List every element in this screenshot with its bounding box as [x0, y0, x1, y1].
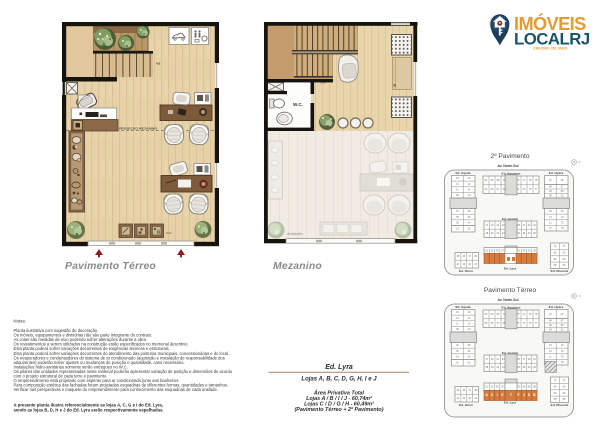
svg-text:3.21: 3.21 — [166, 231, 172, 235]
svg-text:Ed. Lyra: Ed. Lyra — [325, 364, 353, 371]
svg-text:Ed. Orion: Ed. Orion — [459, 403, 473, 407]
svg-text:Ed. Aquila: Ed. Aquila — [455, 171, 470, 175]
svg-text:Notas:: Notas: — [14, 319, 26, 324]
svg-text:Ed. Phoenix: Ed. Phoenix — [551, 269, 569, 273]
svg-text:2º Pavimento: 2º Pavimento — [490, 153, 529, 160]
svg-text:Mezanino: Mezanino — [273, 261, 322, 272]
svg-text:W.C.: W.C. — [293, 102, 303, 107]
svg-text:Ed. Lyra: Ed. Lyra — [504, 401, 516, 405]
svg-text:Av. Norte-Sul: Av. Norte-Sul — [497, 298, 518, 302]
svg-text:Ed. Hydra: Ed. Hydra — [549, 171, 564, 175]
svg-text:Ambientes: Ambientes — [286, 232, 303, 236]
svg-text:T: T — [510, 393, 512, 397]
svg-text:4.0: 4.0 — [156, 62, 161, 66]
svg-text:Pavimento Térreo: Pavimento Térreo — [484, 287, 537, 294]
svg-text:CRECI/RJ 051.306/O: CRECI/RJ 051.306/O — [533, 47, 568, 51]
svg-text:Av. Norte-Sul: Av. Norte-Sul — [497, 164, 518, 168]
svg-text:(Pavimento Térreo + 2º Pavimen: (Pavimento Térreo + 2º Pavimento) — [295, 407, 384, 413]
svg-text:sendo as lojas B, D, H e J do: sendo as lojas B, D, H e J do Ed. Lyra s… — [14, 408, 164, 413]
svg-text:Ed. Hydra: Ed. Hydra — [549, 305, 564, 309]
svg-text:I: I — [497, 393, 498, 397]
svg-text:J: J — [523, 393, 525, 397]
svg-text:F: F — [518, 393, 520, 397]
svg-text:Lojas A, B, C, D, G, H, I e J: Lojas A, B, C, D, G, H, I e J — [301, 377, 377, 383]
svg-text:Verificar nas perspectivas e m: Verificar nas perspectivas e maquete do … — [14, 387, 218, 392]
svg-text:Ed. Orion: Ed. Orion — [459, 269, 473, 273]
svg-text:Ed. Phoenix: Ed. Phoenix — [551, 403, 569, 407]
svg-text:Ed. Lyra: Ed. Lyra — [504, 267, 516, 271]
svg-text:Pavimento Térreo: Pavimento Térreo — [65, 261, 156, 272]
svg-text:Ed. Aquila: Ed. Aquila — [455, 305, 470, 309]
svg-text:PROJEÇÃO MEZANINO: PROJEÇÃO MEZANINO — [119, 126, 158, 131]
